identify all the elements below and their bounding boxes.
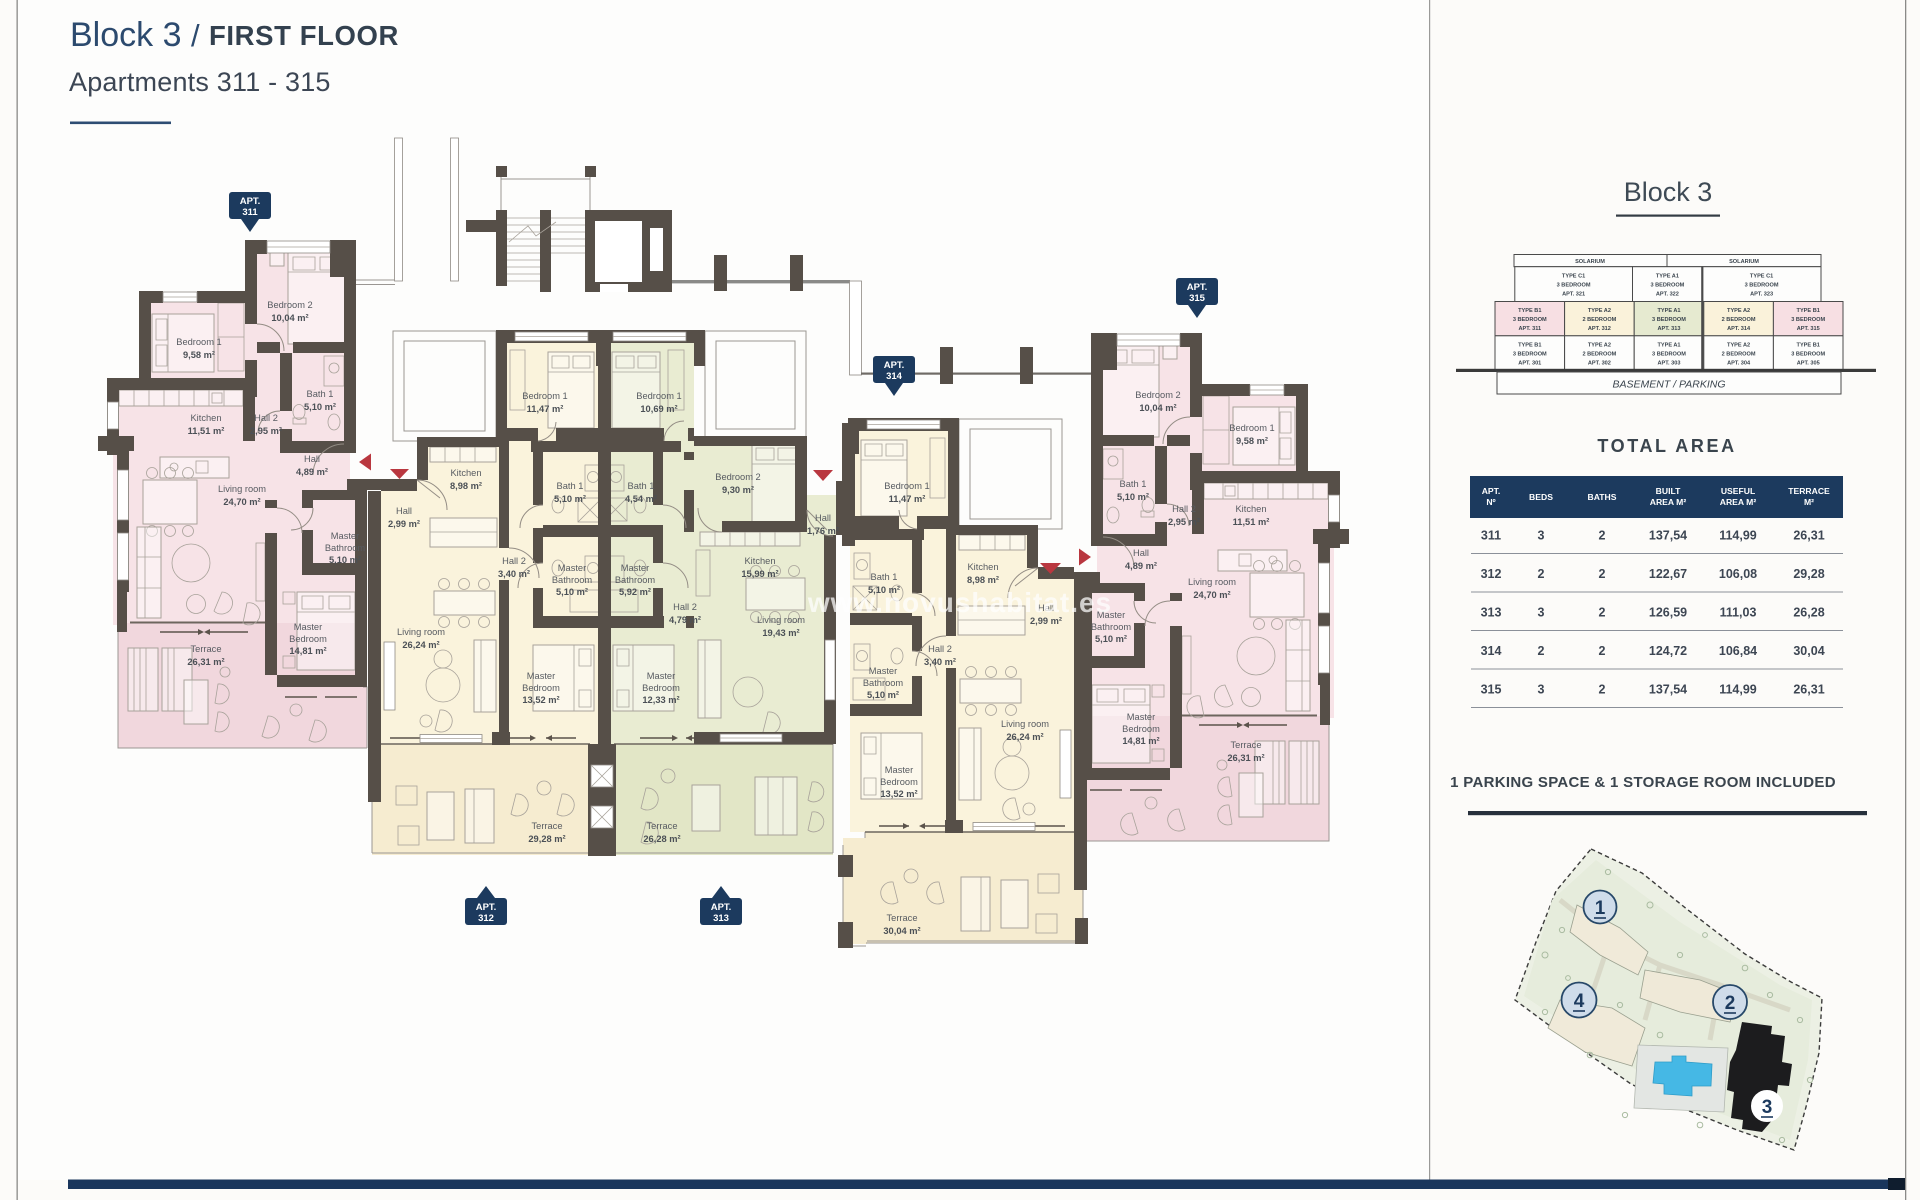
svg-text:TYPE B1: TYPE B1	[1518, 343, 1541, 349]
svg-text:4,89 m²: 4,89 m²	[296, 467, 328, 477]
svg-text:19,43 m²: 19,43 m²	[762, 628, 799, 638]
svg-text:2 BEDROOM: 2 BEDROOM	[1722, 352, 1756, 358]
svg-text:Terrace: Terrace	[647, 821, 678, 831]
svg-text:314: 314	[1481, 644, 1502, 658]
svg-text:26,31: 26,31	[1793, 529, 1824, 543]
svg-text:Terrace: Terrace	[887, 913, 918, 923]
svg-text:4,79 m²: 4,79 m²	[669, 615, 701, 625]
svg-text:Living room: Living room	[1001, 719, 1049, 729]
svg-text:315: 315	[1481, 683, 1502, 697]
svg-text:Bedroom: Bedroom	[522, 683, 560, 693]
svg-text:APT. 304: APT. 304	[1727, 361, 1751, 367]
svg-text:Bedroom: Bedroom	[880, 777, 918, 787]
svg-text:Kitchen: Kitchen	[967, 562, 998, 572]
svg-text:26,31: 26,31	[1793, 683, 1824, 697]
svg-text:BEDS: BEDS	[1529, 492, 1553, 502]
svg-text:2,95 m²: 2,95 m²	[250, 426, 282, 436]
svg-text:Hall: Hall	[1133, 548, 1149, 558]
svg-text:2: 2	[1599, 567, 1606, 581]
svg-text:TYPE A2: TYPE A2	[1588, 308, 1611, 314]
svg-text:APT. 315: APT. 315	[1797, 326, 1820, 332]
svg-text:5,10 m²: 5,10 m²	[554, 494, 586, 504]
svg-text:TYPE A1: TYPE A1	[1657, 343, 1680, 349]
svg-text:Master: Master	[885, 765, 913, 775]
svg-text:26,31 m²: 26,31 m²	[1227, 753, 1264, 763]
svg-text:AREA M²: AREA M²	[1720, 497, 1757, 507]
svg-text:312: 312	[478, 913, 494, 924]
svg-text:3,40 m²: 3,40 m²	[498, 569, 530, 579]
svg-text:1 PARKING SPACE & 1 STORAGE RO: 1 PARKING SPACE & 1 STORAGE ROOM INCLUDE…	[1450, 774, 1836, 791]
svg-text:4,54 m²: 4,54 m²	[625, 494, 657, 504]
svg-text:1,76 m²: 1,76 m²	[807, 526, 839, 536]
svg-text:5,10 m²: 5,10 m²	[329, 555, 361, 565]
svg-text:APT. 322: APT. 322	[1656, 292, 1679, 298]
svg-text:4: 4	[1574, 991, 1585, 1012]
svg-text:Master: Master	[1127, 712, 1155, 722]
svg-text:SOLARIUM: SOLARIUM	[1729, 259, 1759, 265]
svg-text:29,28 m²: 29,28 m²	[528, 834, 565, 844]
svg-text:26,28 m²: 26,28 m²	[643, 834, 680, 844]
svg-text:24,70 m²: 24,70 m²	[223, 497, 260, 507]
svg-text:2,95 m²: 2,95 m²	[1168, 517, 1200, 527]
svg-text:Terrace: Terrace	[191, 644, 222, 654]
svg-text:124,72: 124,72	[1649, 644, 1687, 658]
svg-text:Bath 1: Bath 1	[628, 481, 655, 491]
svg-text:Bedroom: Bedroom	[642, 683, 680, 693]
svg-text:24,70 m²: 24,70 m²	[1193, 590, 1230, 600]
svg-text:TYPE B1: TYPE B1	[1797, 343, 1820, 349]
svg-text:3: 3	[1538, 683, 1545, 697]
svg-text:3 BEDROOM: 3 BEDROOM	[1513, 317, 1547, 323]
svg-text:Hall 2: Hall 2	[928, 644, 952, 654]
svg-text:Bathroom: Bathroom	[1091, 622, 1132, 632]
svg-text:9,58 m²: 9,58 m²	[183, 350, 215, 360]
svg-text:3,40 m²: 3,40 m²	[924, 657, 956, 667]
svg-text:Living room: Living room	[1188, 577, 1236, 587]
svg-text:106,84: 106,84	[1719, 644, 1757, 658]
svg-text:3 BEDROOM: 3 BEDROOM	[1745, 283, 1779, 289]
svg-text:Bathroom: Bathroom	[863, 678, 904, 688]
svg-text:29,28: 29,28	[1793, 567, 1824, 581]
svg-text:Hall 2: Hall 2	[502, 556, 526, 566]
svg-text:14,81 m²: 14,81 m²	[1122, 736, 1159, 746]
svg-text:TYPE A2: TYPE A2	[1588, 343, 1611, 349]
svg-text:APT. 312: APT. 312	[1588, 326, 1611, 332]
svg-text:APT. 314: APT. 314	[1727, 326, 1751, 332]
svg-text:313: 313	[713, 913, 729, 924]
svg-text:APT. 313: APT. 313	[1657, 326, 1680, 332]
svg-text:5,10 m²: 5,10 m²	[1117, 492, 1149, 502]
svg-text:2 BEDROOM: 2 BEDROOM	[1582, 317, 1616, 323]
svg-text:114,99: 114,99	[1719, 683, 1757, 697]
svg-text:9,30 m²: 9,30 m²	[722, 485, 754, 495]
svg-text:Living room: Living room	[757, 615, 805, 625]
svg-text:Hall: Hall	[815, 513, 831, 523]
svg-text:Bedroom 1: Bedroom 1	[176, 337, 221, 347]
svg-text:Master: Master	[558, 563, 586, 573]
svg-text:Bath 1: Bath 1	[307, 389, 334, 399]
svg-text:Terrace: Terrace	[1231, 740, 1262, 750]
svg-text:11,47 m²: 11,47 m²	[889, 494, 926, 504]
svg-text:TYPE C1: TYPE C1	[1750, 274, 1773, 280]
svg-text:30,04: 30,04	[1793, 644, 1824, 658]
svg-text:3 BEDROOM: 3 BEDROOM	[1791, 317, 1825, 323]
svg-text:3 BEDROOM: 3 BEDROOM	[1513, 352, 1547, 358]
svg-text:114,99: 114,99	[1719, 529, 1757, 543]
svg-text:3: 3	[1762, 1097, 1773, 1118]
svg-text:APT. 305: APT. 305	[1797, 361, 1820, 367]
svg-text:Bedroom 1: Bedroom 1	[1229, 423, 1274, 433]
svg-text:AREA M²: AREA M²	[1650, 497, 1687, 507]
svg-text:2: 2	[1725, 993, 1736, 1014]
svg-text:Apartments 311 - 315: Apartments 311 - 315	[69, 67, 331, 97]
svg-text:2: 2	[1538, 567, 1545, 581]
svg-text:3 BEDROOM: 3 BEDROOM	[1652, 352, 1686, 358]
svg-text:TYPE A2: TYPE A2	[1727, 308, 1750, 314]
svg-text:2 BEDROOM: 2 BEDROOM	[1582, 352, 1616, 358]
svg-text:15,99 m²: 15,99 m²	[741, 569, 778, 579]
svg-text:3 BEDROOM: 3 BEDROOM	[1557, 283, 1591, 289]
svg-text:9,58 m²: 9,58 m²	[1236, 436, 1268, 446]
svg-text:Master: Master	[294, 622, 322, 632]
svg-text:11,47 m²: 11,47 m²	[527, 404, 564, 414]
svg-text:106,08: 106,08	[1719, 567, 1757, 581]
svg-text:314: 314	[886, 371, 903, 382]
svg-text:Bath 1: Bath 1	[1120, 479, 1147, 489]
svg-text:Bedroom: Bedroom	[289, 634, 327, 644]
svg-text:311: 311	[1481, 529, 1501, 543]
svg-text:Block 3: Block 3	[1624, 177, 1713, 207]
svg-text:APT. 323: APT. 323	[1750, 292, 1773, 298]
svg-text:SOLARIUM: SOLARIUM	[1575, 259, 1605, 265]
svg-text:Bedroom 1: Bedroom 1	[636, 391, 681, 401]
svg-text:2: 2	[1599, 606, 1606, 620]
svg-text:TYPE A1: TYPE A1	[1657, 308, 1680, 314]
svg-text:26,24 m²: 26,24 m²	[1006, 732, 1043, 742]
svg-text:10,04 m²: 10,04 m²	[271, 313, 308, 323]
svg-text:BASEMENT / PARKING: BASEMENT / PARKING	[1613, 379, 1726, 391]
svg-text:Hall 2: Hall 2	[1172, 504, 1196, 514]
svg-text:2: 2	[1599, 529, 1606, 543]
svg-text:Block 3 / FIRST FLOOR: Block 3 / FIRST FLOOR	[70, 16, 399, 54]
svg-text:3 BEDROOM: 3 BEDROOM	[1791, 352, 1825, 358]
svg-text:APT.: APT.	[884, 360, 905, 371]
svg-text:312: 312	[1481, 567, 1502, 581]
svg-text:Master: Master	[527, 671, 555, 681]
svg-text:26,28: 26,28	[1793, 606, 1824, 620]
svg-text:13,52 m²: 13,52 m²	[522, 695, 559, 705]
svg-text:5,10 m²: 5,10 m²	[1095, 634, 1127, 644]
svg-text:2 BEDROOM: 2 BEDROOM	[1722, 317, 1756, 323]
svg-text:10,69 m²: 10,69 m²	[640, 404, 677, 414]
svg-text:TYPE C1: TYPE C1	[1562, 274, 1585, 280]
svg-text:Hall 2: Hall 2	[254, 413, 278, 423]
svg-text:Living room: Living room	[218, 484, 266, 494]
svg-text:126,59: 126,59	[1649, 606, 1687, 620]
svg-text:Terrace: Terrace	[532, 821, 563, 831]
svg-text:5,92 m²: 5,92 m²	[619, 587, 651, 597]
svg-text:313: 313	[1481, 606, 1502, 620]
svg-text:Master: Master	[621, 563, 649, 573]
svg-text:122,67: 122,67	[1649, 567, 1687, 581]
svg-text:Bedroom 1: Bedroom 1	[884, 481, 929, 491]
svg-text:APT.: APT.	[1482, 486, 1501, 496]
svg-text:3: 3	[1538, 606, 1545, 620]
svg-text:TOTAL AREA: TOTAL AREA	[1597, 436, 1736, 456]
svg-text:26,31 m²: 26,31 m²	[187, 657, 224, 667]
svg-text:26,24 m²: 26,24 m²	[402, 640, 439, 650]
svg-text:www.novushabitat.es: www.novushabitat.es	[807, 587, 1112, 618]
svg-text:Bathroom: Bathroom	[552, 575, 593, 585]
svg-text:Bath 1: Bath 1	[871, 572, 898, 582]
svg-text:BUILT: BUILT	[1656, 486, 1681, 496]
svg-text:2: 2	[1599, 683, 1606, 697]
svg-text:Bedroom 2: Bedroom 2	[715, 472, 760, 482]
svg-text:3 BEDROOM: 3 BEDROOM	[1652, 317, 1686, 323]
svg-text:APT. 301: APT. 301	[1518, 361, 1541, 367]
svg-text:Living room: Living room	[397, 627, 445, 637]
svg-text:12,33 m²: 12,33 m²	[642, 695, 679, 705]
svg-text:2,99 m²: 2,99 m²	[388, 519, 420, 529]
svg-text:1: 1	[1595, 898, 1606, 919]
svg-text:13,52 m²: 13,52 m²	[880, 789, 917, 799]
svg-text:APT.: APT.	[711, 902, 732, 913]
svg-text:4,89 m²: 4,89 m²	[1125, 561, 1157, 571]
svg-text:APT.: APT.	[476, 902, 497, 913]
svg-text:137,54: 137,54	[1649, 683, 1687, 697]
svg-text:30,04 m²: 30,04 m²	[883, 926, 920, 936]
svg-text:311: 311	[242, 207, 258, 218]
svg-text:8,98 m²: 8,98 m²	[450, 481, 482, 491]
svg-text:Bedroom 2: Bedroom 2	[1135, 390, 1180, 400]
svg-text:Master: Master	[647, 671, 675, 681]
svg-text:315: 315	[1189, 293, 1206, 304]
svg-text:11,51 m²: 11,51 m²	[1233, 517, 1270, 527]
svg-text:APT. 302: APT. 302	[1588, 361, 1611, 367]
svg-text:USEFUL: USEFUL	[1721, 486, 1755, 496]
svg-text:TYPE A1: TYPE A1	[1656, 274, 1679, 280]
svg-text:Kitchen: Kitchen	[450, 468, 481, 478]
svg-text:APT. 311: APT. 311	[1518, 326, 1541, 332]
svg-text:Bedroom: Bedroom	[1122, 724, 1160, 734]
svg-text:APT.: APT.	[1187, 282, 1208, 293]
svg-text:Bedroom 1: Bedroom 1	[522, 391, 567, 401]
svg-text:M²: M²	[1804, 497, 1814, 507]
svg-text:APT.: APT.	[240, 196, 261, 207]
svg-text:Bedroom 2: Bedroom 2	[267, 300, 312, 310]
svg-text:TYPE A2: TYPE A2	[1727, 343, 1750, 349]
svg-text:5,10 m²: 5,10 m²	[304, 402, 336, 412]
svg-text:2: 2	[1599, 644, 1606, 658]
svg-text:TYPE B1: TYPE B1	[1797, 308, 1820, 314]
svg-text:Nº: Nº	[1486, 497, 1495, 507]
svg-text:BATHS: BATHS	[1588, 492, 1617, 502]
svg-text:TERRACE: TERRACE	[1788, 486, 1830, 496]
svg-text:14,81 m²: 14,81 m²	[289, 646, 326, 656]
svg-text:APT. 321: APT. 321	[1562, 292, 1585, 298]
svg-text:Bathroom: Bathroom	[615, 575, 656, 585]
svg-text:Hall: Hall	[304, 454, 320, 464]
svg-text:Kitchen: Kitchen	[1235, 504, 1266, 514]
svg-text:Kitchen: Kitchen	[744, 556, 775, 566]
svg-text:Bath 1: Bath 1	[557, 481, 584, 491]
svg-text:Kitchen: Kitchen	[190, 413, 221, 423]
svg-text:Master: Master	[331, 531, 359, 541]
svg-text:8,98 m²: 8,98 m²	[967, 575, 999, 585]
svg-text:5,10 m²: 5,10 m²	[556, 587, 588, 597]
svg-text:2: 2	[1538, 644, 1545, 658]
svg-text:Bathroom: Bathroom	[325, 543, 366, 553]
svg-text:Hall: Hall	[396, 506, 412, 516]
svg-text:Hall 2: Hall 2	[673, 602, 697, 612]
svg-text:111,03: 111,03	[1720, 606, 1757, 620]
svg-text:10,04 m²: 10,04 m²	[1139, 403, 1176, 413]
svg-text:5,10 m²: 5,10 m²	[867, 690, 899, 700]
svg-text:11,51 m²: 11,51 m²	[188, 426, 225, 436]
svg-text:3 BEDROOM: 3 BEDROOM	[1650, 283, 1684, 289]
svg-text:TYPE B1: TYPE B1	[1518, 308, 1541, 314]
svg-text:APT. 303: APT. 303	[1657, 361, 1680, 367]
svg-text:137,54: 137,54	[1649, 529, 1687, 543]
svg-text:3: 3	[1538, 529, 1545, 543]
svg-text:Master: Master	[869, 666, 897, 676]
